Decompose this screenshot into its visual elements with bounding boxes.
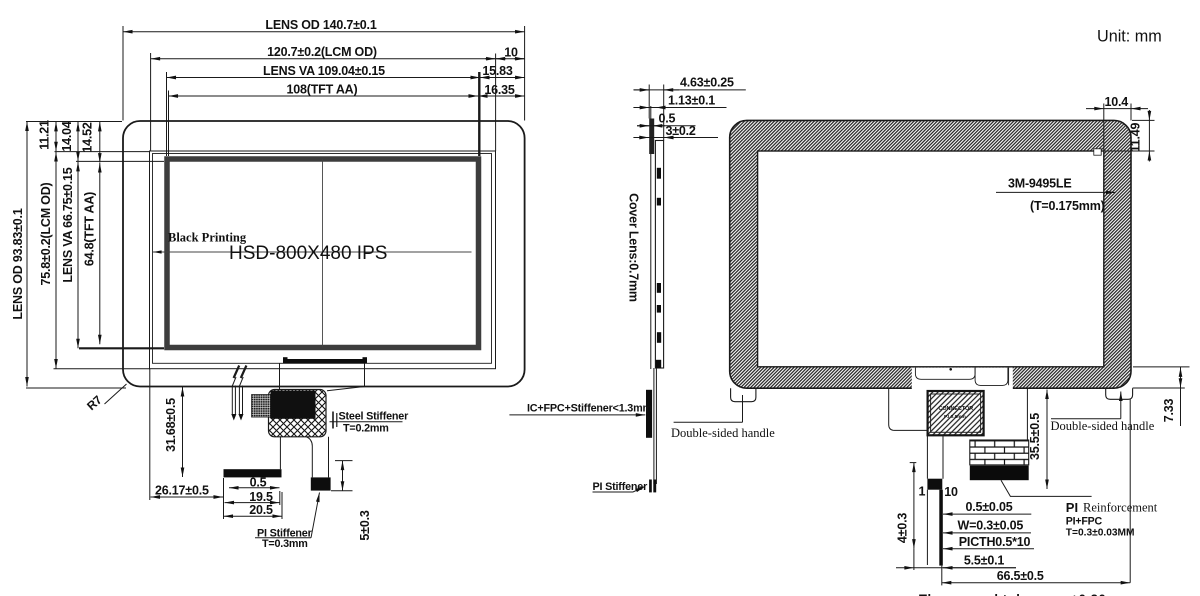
svg-text:Reinforcement: Reinforcement <box>1083 501 1158 515</box>
svg-text:PI+FPC: PI+FPC <box>1066 516 1103 528</box>
svg-text:120.7±0.2(LCM OD): 120.7±0.2(LCM OD) <box>267 45 377 59</box>
svg-text:LENS OD 93.83±0.1: LENS OD 93.83±0.1 <box>11 208 25 319</box>
svg-text:R7: R7 <box>84 392 105 413</box>
svg-text:LENS VA 66.75±0.15: LENS VA 66.75±0.15 <box>61 167 75 282</box>
svg-text:3M-9495LE: 3M-9495LE <box>1008 177 1072 191</box>
svg-text:P.I 0.5mm: P.I 0.5mm <box>944 414 966 420</box>
svg-text:14.52: 14.52 <box>81 122 95 153</box>
svg-text:108(TFT AA): 108(TFT AA) <box>287 83 358 97</box>
svg-text:64.8(TFT AA): 64.8(TFT AA) <box>83 192 97 266</box>
svg-text:Steel Stiffener: Steel Stiffener <box>339 411 410 423</box>
svg-text:16.35: 16.35 <box>484 83 515 97</box>
svg-text:PI: PI <box>1066 500 1078 515</box>
svg-text:CONNECTOR: CONNECTOR <box>939 406 974 412</box>
svg-text:14.04: 14.04 <box>60 121 74 152</box>
svg-text:3±0.2: 3±0.2 <box>666 124 696 138</box>
svg-text:66.5±0.5: 66.5±0.5 <box>997 569 1044 583</box>
svg-text:T=0.3mm: T=0.3mm <box>262 538 308 550</box>
svg-text:75.8±0.2(LCM OD): 75.8±0.2(LCM OD) <box>39 182 53 285</box>
svg-text:10.4: 10.4 <box>1105 95 1129 109</box>
svg-text:20.5: 20.5 <box>249 503 273 517</box>
svg-text:Double-sided handle: Double-sided handle <box>671 426 775 440</box>
svg-text:15.83: 15.83 <box>482 64 513 78</box>
svg-text:1: 1 <box>919 485 926 499</box>
svg-text:0.5: 0.5 <box>250 475 267 489</box>
svg-text:PICTH0.5*10: PICTH0.5*10 <box>959 535 1031 549</box>
svg-text:LENS OD 140.7±0.1: LENS OD 140.7±0.1 <box>265 18 376 32</box>
svg-text:W=0.3±0.05: W=0.3±0.05 <box>958 519 1024 533</box>
svg-text:T=0.3±0.03MM: T=0.3±0.03MM <box>1066 527 1135 538</box>
svg-text:Double-sided handle: Double-sided handle <box>1051 419 1155 433</box>
svg-text:10: 10 <box>944 485 958 499</box>
svg-text:7.33: 7.33 <box>1162 398 1176 422</box>
svg-text:11.21: 11.21 <box>38 120 52 150</box>
svg-text:35.5±0.5: 35.5±0.5 <box>1028 413 1042 460</box>
svg-text:10: 10 <box>504 45 518 59</box>
svg-text:T=0.2mm: T=0.2mm <box>343 423 389 435</box>
svg-text:11.49: 11.49 <box>1129 122 1143 152</box>
svg-text:Cover Lens:0.7mm: Cover Lens:0.7mm <box>627 193 641 302</box>
svg-text:LENS VA 109.04±0.15: LENS VA 109.04±0.15 <box>263 64 385 78</box>
svg-text:5±0.3: 5±0.3 <box>358 510 372 540</box>
svg-text:26.17±0.5: 26.17±0.5 <box>155 483 209 497</box>
svg-text:HSD-800X480 IPS: HSD-800X480 IPS <box>229 243 387 264</box>
svg-text:IC+FPC+Stiffener<1.3mm: IC+FPC+Stiffener<1.3mm <box>527 402 652 414</box>
svg-text:4.63±0.25: 4.63±0.25 <box>680 76 734 90</box>
svg-text:0.5±0.05: 0.5±0.05 <box>966 500 1013 514</box>
svg-text:(T=0.175mm): (T=0.175mm) <box>1030 199 1105 213</box>
svg-text:19.5: 19.5 <box>249 490 273 504</box>
svg-text:PI Stiffener: PI Stiffener <box>593 481 649 493</box>
svg-text:5.5±0.1: 5.5±0.1 <box>964 554 1004 568</box>
svg-text:1.13±0.1: 1.13±0.1 <box>668 93 715 107</box>
svg-text:Unit: mm: Unit: mm <box>1097 28 1162 46</box>
svg-text:The general tolerance:±0.20mm: The general tolerance:±0.20mm <box>919 591 1131 596</box>
svg-text:4±0.3: 4±0.3 <box>896 513 910 543</box>
svg-text:31.68±0.5: 31.68±0.5 <box>164 398 178 452</box>
